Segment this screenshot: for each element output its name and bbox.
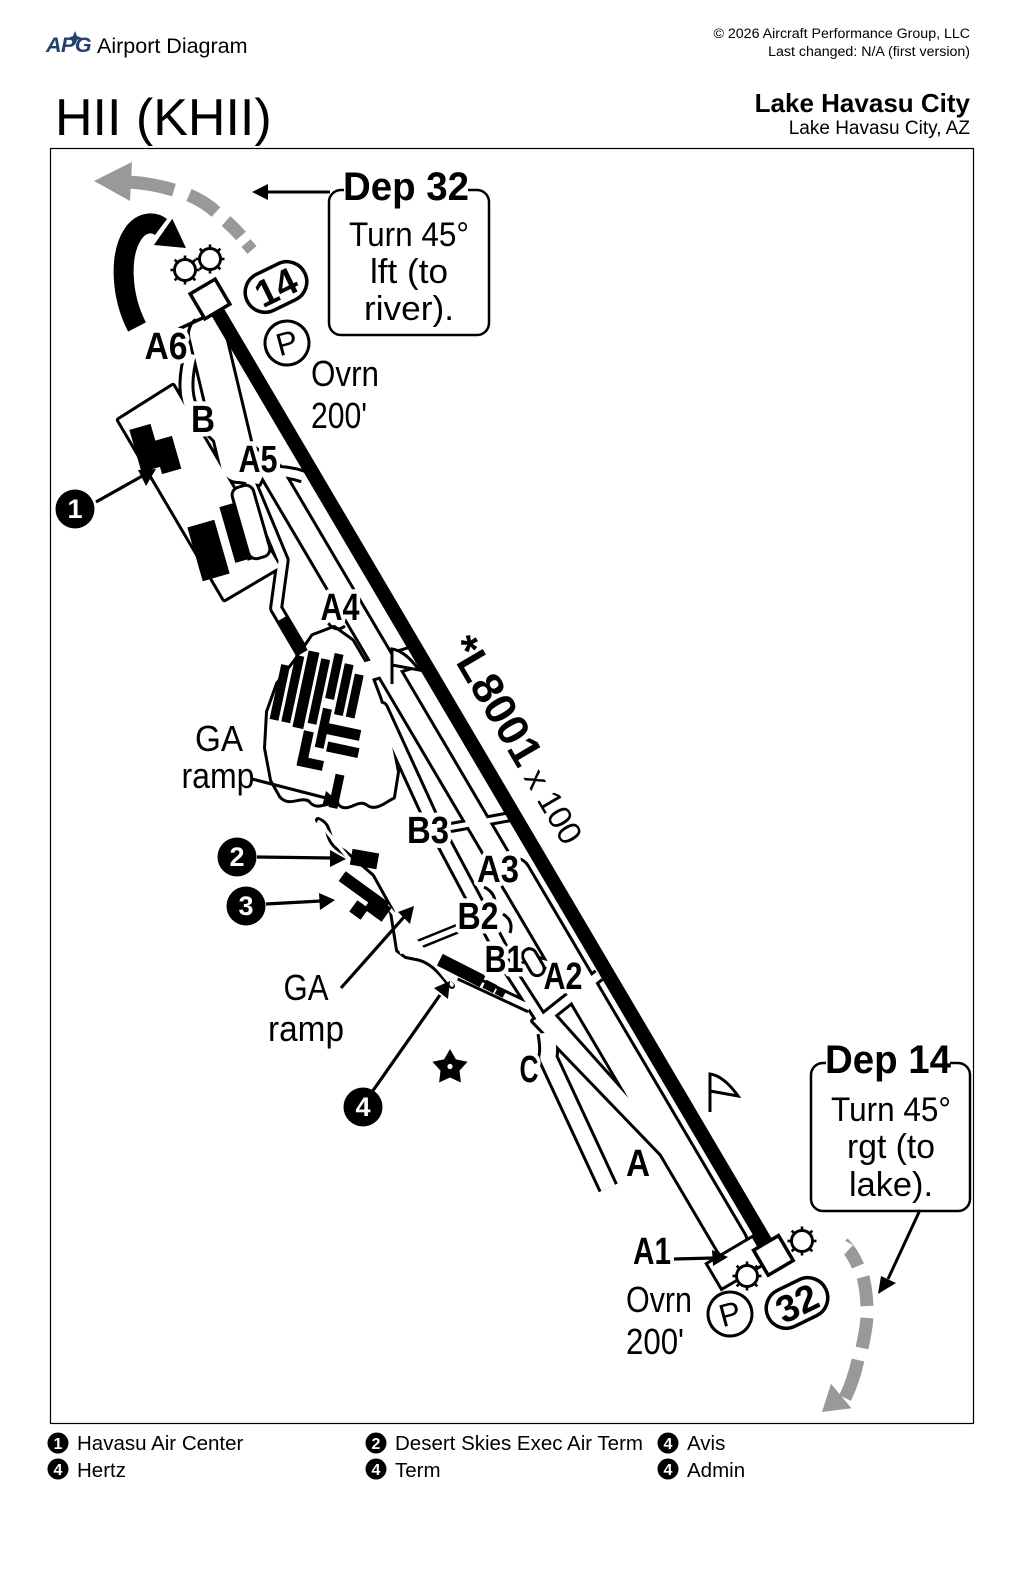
svg-text:Ovrn: Ovrn [311,353,379,394]
svg-text:C: C [520,1049,539,1091]
svg-text:A: A [626,1143,650,1185]
svg-text:2: 2 [372,1436,381,1453]
svg-text:A4: A4 [321,587,360,629]
svg-text:Admin: Admin [687,1459,745,1482]
svg-text:Last changed: N/A (first versi: Last changed: N/A (first version) [768,44,970,60]
svg-text:Term: Term [395,1459,441,1482]
svg-text:A3: A3 [477,849,519,891]
svg-text:4: 4 [664,1462,673,1479]
svg-text:GA: GA [195,718,243,759]
svg-text:Lake Havasu City: Lake Havasu City [755,88,971,118]
svg-text:Desert Skies Exec Air Term: Desert Skies Exec Air Term [395,1432,643,1455]
svg-text:1: 1 [54,1436,63,1453]
svg-text:200': 200' [311,395,367,436]
svg-text:B1: B1 [485,939,524,981]
svg-text:Hertz: Hertz [77,1459,126,1482]
svg-text:200': 200' [626,1321,684,1362]
svg-text:2: 2 [229,842,244,872]
svg-text:APG: APG [45,33,92,57]
svg-text:Airport Diagram: Airport Diagram [97,34,248,58]
svg-text:A5: A5 [239,439,278,481]
svg-text:lake).: lake). [849,1166,933,1204]
svg-text:4: 4 [355,1092,370,1122]
svg-text:B2: B2 [458,896,499,938]
svg-text:3: 3 [238,891,253,921]
svg-text:rgt (to: rgt (to [847,1128,935,1166]
svg-text:B3: B3 [407,810,449,852]
svg-text:Turn 45°: Turn 45° [349,216,469,254]
svg-text:Havasu Air Center: Havasu Air Center [77,1432,244,1455]
svg-text:Dep 32: Dep 32 [343,165,469,209]
svg-text:4: 4 [372,1462,381,1479]
svg-text:ramp: ramp [268,1008,344,1049]
svg-text:1: 1 [67,494,82,524]
svg-text:4: 4 [664,1436,673,1453]
svg-text:A6: A6 [145,326,188,368]
svg-text:Lake Havasu City, AZ: Lake Havasu City, AZ [789,118,971,139]
svg-text:4: 4 [54,1462,63,1479]
svg-text:Dep 14: Dep 14 [825,1038,952,1082]
svg-text:Ovrn: Ovrn [626,1279,692,1320]
svg-text:Turn 45°: Turn 45° [831,1091,951,1129]
svg-text:HII (KHII): HII (KHII) [55,89,272,147]
svg-text:Avis: Avis [687,1432,725,1455]
svg-text:B: B [191,399,215,441]
svg-text:A2: A2 [544,956,583,998]
svg-text:© 2026 Aircraft Performance Gr: © 2026 Aircraft Performance Group, LLC [714,26,971,42]
svg-text:lft (to: lft (to [370,253,448,291]
svg-text:GA: GA [284,967,329,1008]
svg-text:ramp: ramp [182,755,255,796]
svg-text:river).: river). [364,290,454,328]
svg-text:A1: A1 [633,1231,671,1273]
